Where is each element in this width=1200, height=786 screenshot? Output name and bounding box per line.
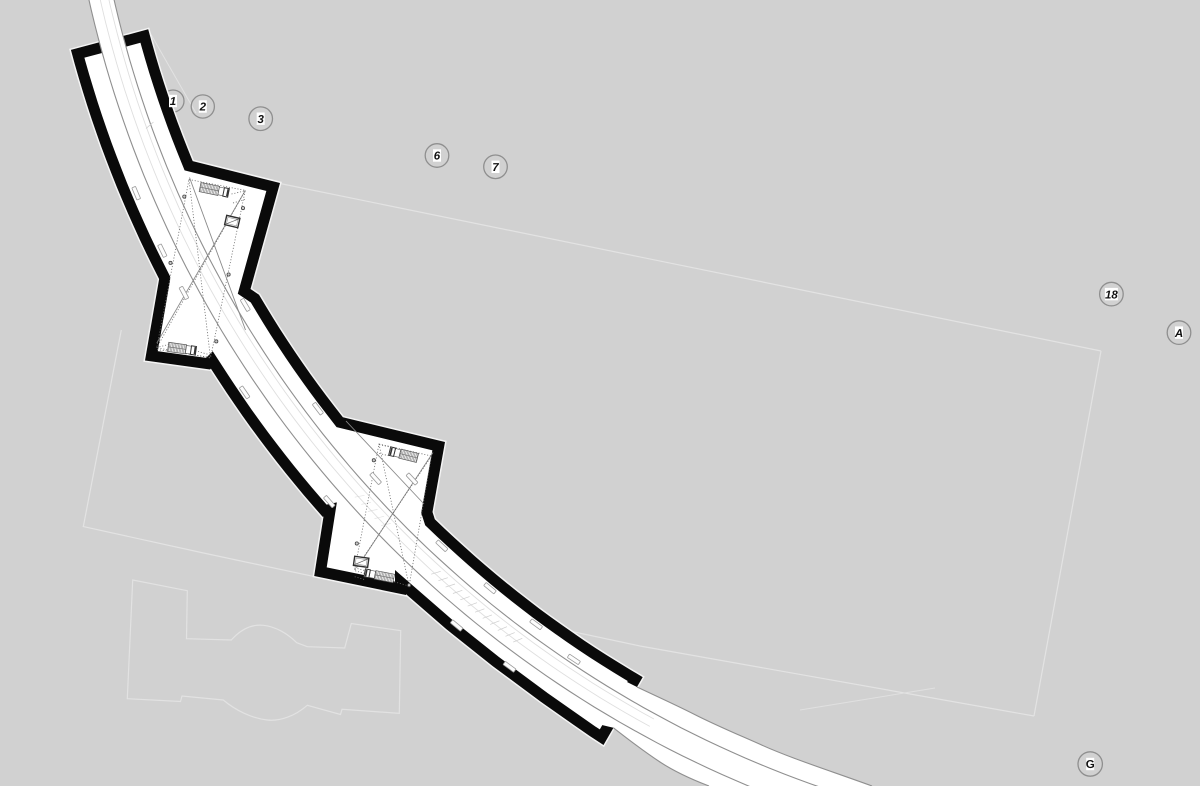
svg-text:18: 18 <box>1105 289 1118 301</box>
svg-text:7: 7 <box>492 162 499 174</box>
svg-text:1: 1 <box>170 96 176 108</box>
svg-text:6: 6 <box>434 151 441 163</box>
svg-text:2: 2 <box>199 102 207 114</box>
svg-text:3: 3 <box>257 114 264 126</box>
svg-text:A: A <box>1174 328 1183 340</box>
svg-text:G: G <box>1086 759 1095 771</box>
